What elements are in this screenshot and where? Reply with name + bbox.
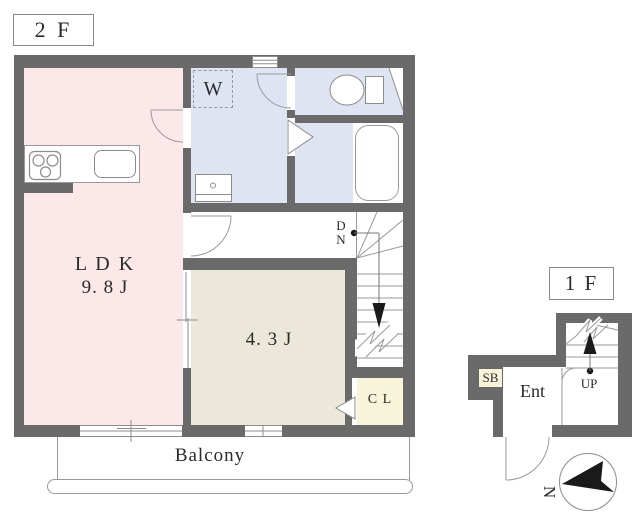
bedroom-window: [245, 425, 282, 437]
room-ldk: [24, 68, 183, 425]
floor-2f-label: 2 F: [35, 17, 73, 43]
floor-1f-label: 1 F: [565, 271, 598, 296]
entrance-door-arc: [506, 437, 549, 480]
laundry-space-w: W: [193, 70, 233, 108]
floor-2f-label-box: 2 F: [13, 14, 94, 46]
entrance-label: Ent: [503, 381, 562, 402]
balcony-label: Balcony: [60, 445, 360, 467]
room-toilet: [295, 68, 403, 115]
bathtub-area: [353, 123, 403, 203]
kitchen-partition-wall: [24, 183, 73, 193]
door-opening-hallway: [183, 213, 191, 258]
floor-1f-label-box: 1 F: [549, 267, 614, 300]
room-ldk-label: L D K: [40, 253, 170, 276]
door-opening-sanitary: [183, 108, 191, 148]
room-bedroom-size: 4. 3 J: [195, 329, 343, 351]
balcony-sliding-window: [80, 425, 182, 437]
closet-label: C L: [357, 392, 403, 408]
sliding-door-opening: [183, 270, 191, 368]
door-opening-toilet: [287, 76, 295, 110]
door-opening-bath: [287, 118, 295, 156]
entrance-door-opening: [503, 425, 552, 437]
stairs-up-label: UP: [574, 376, 604, 392]
hallway-2f: [191, 212, 403, 258]
north-arrow-icon: [560, 454, 617, 511]
floor-plan-page: 2 F 1 F W SB: [0, 0, 640, 528]
stairs-down-label-n: N: [334, 232, 348, 248]
shoe-box-sb: SB: [478, 368, 503, 388]
wall-notch-1f: [468, 400, 493, 437]
window-top-wall: [252, 56, 278, 68]
stairwell-2f: [357, 258, 403, 367]
balcony-railing: [47, 479, 413, 494]
room-ldk-size: 9. 8 J: [40, 277, 170, 299]
shoe-box-label: SB: [483, 370, 499, 386]
laundry-label: W: [204, 78, 223, 101]
compass-north-label: N: [539, 483, 559, 501]
